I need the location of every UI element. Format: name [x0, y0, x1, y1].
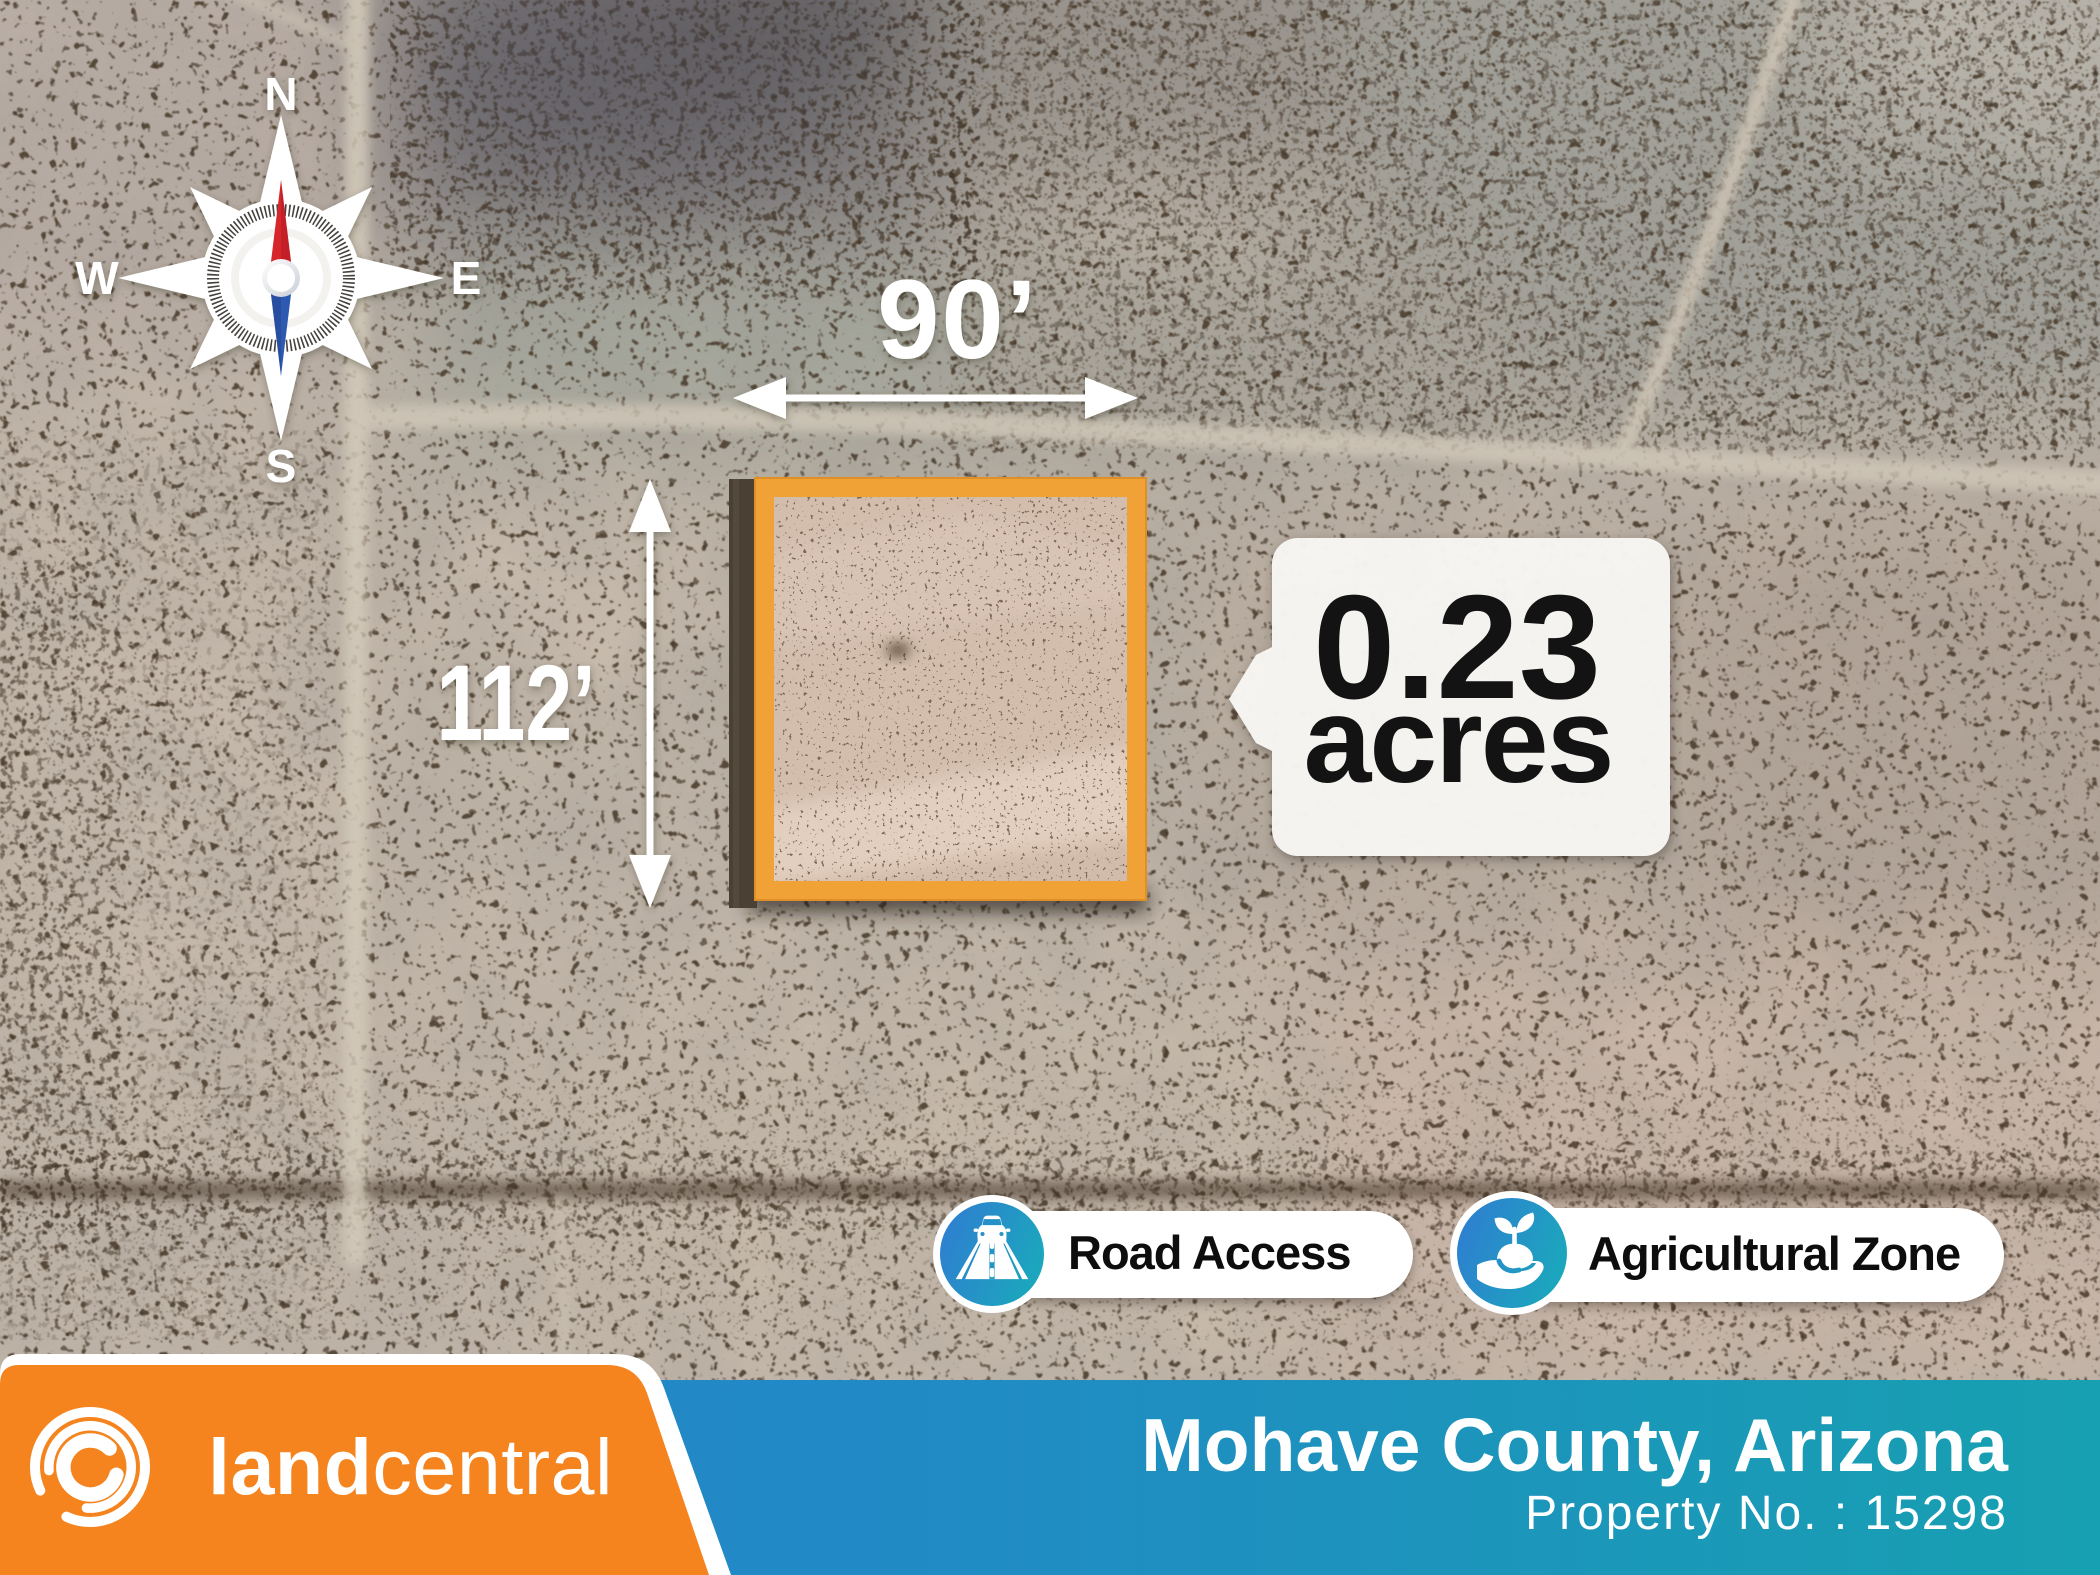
svg-text:N: N — [264, 68, 297, 120]
svg-text:E: E — [451, 252, 482, 304]
svg-text:90’: 90’ — [877, 257, 1039, 382]
svg-text:W: W — [75, 252, 119, 304]
svg-text:acres: acres — [1304, 672, 1613, 808]
svg-text:S: S — [266, 440, 297, 492]
svg-text:112’: 112’ — [436, 642, 595, 764]
